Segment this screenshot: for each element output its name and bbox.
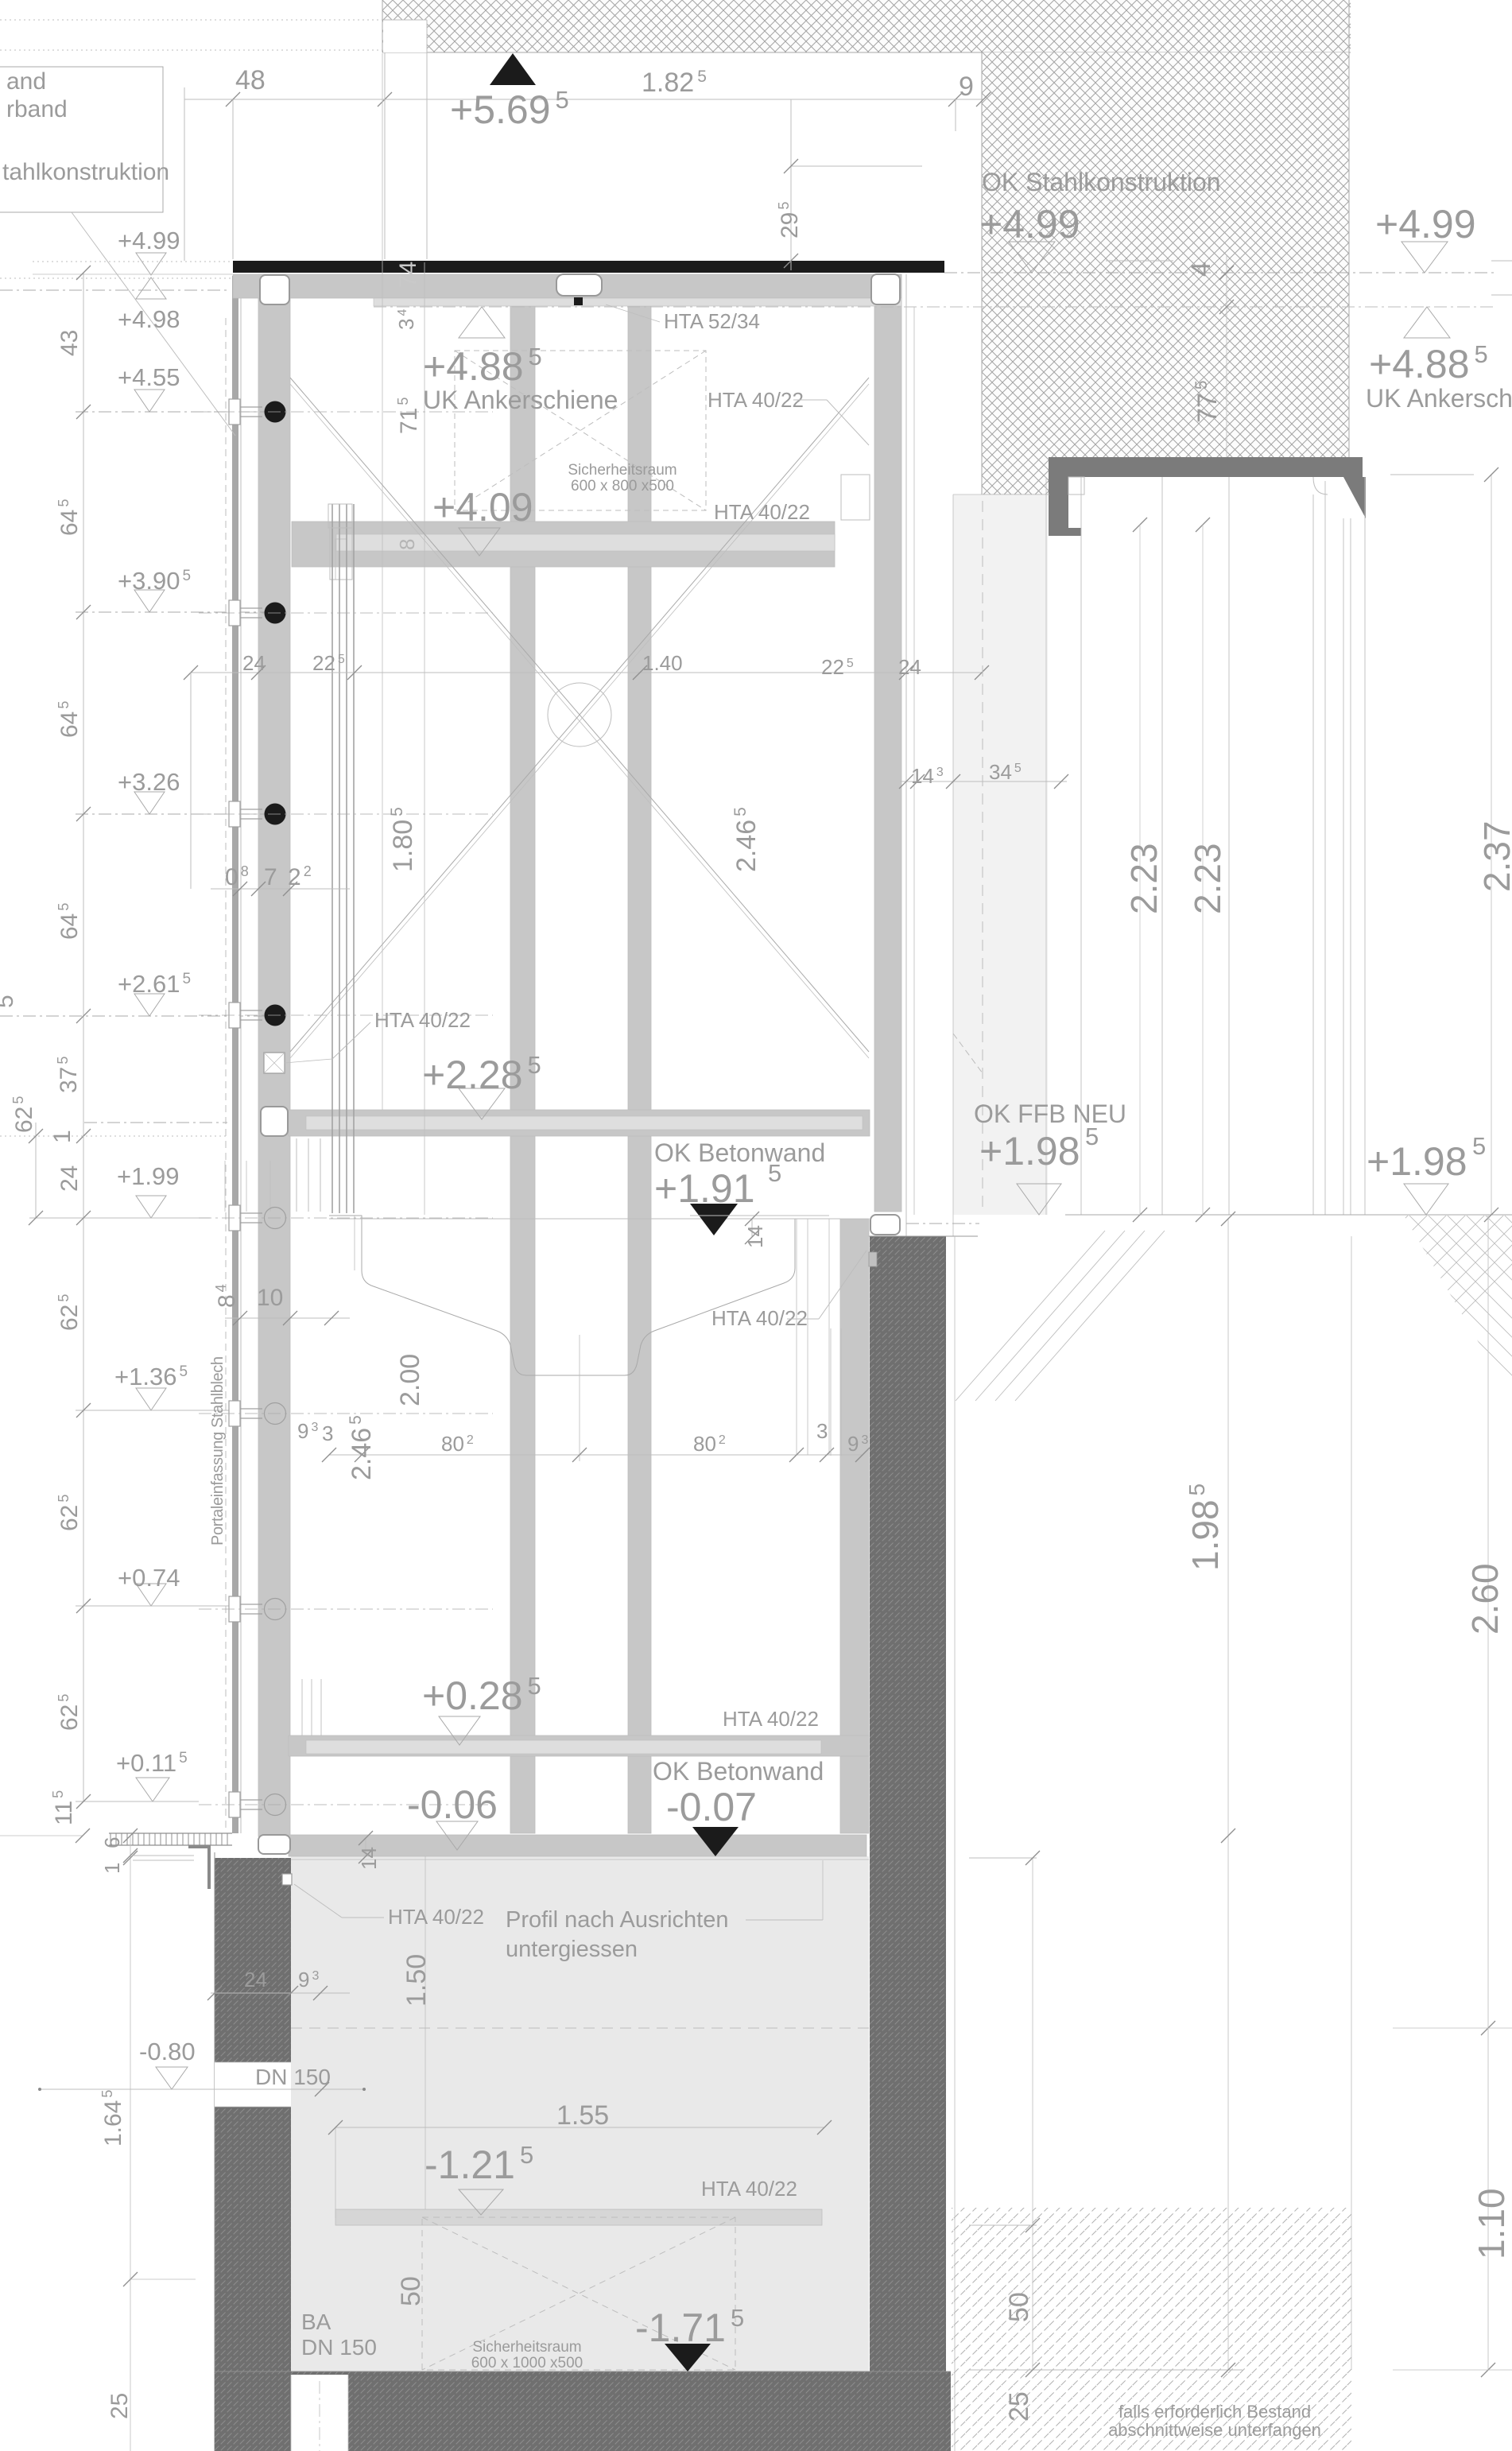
svg-text:24: 24 bbox=[244, 1968, 267, 1991]
svg-text:50: 50 bbox=[396, 2276, 426, 2306]
svg-text:+0.74: +0.74 bbox=[118, 1564, 180, 1592]
svg-text:OK Betonwand: OK Betonwand bbox=[654, 1138, 825, 1167]
svg-text:48: 48 bbox=[235, 65, 266, 95]
svg-text:HTA 40/22: HTA 40/22 bbox=[714, 500, 810, 524]
svg-text:and: and bbox=[6, 68, 46, 95]
svg-text:9: 9 bbox=[959, 72, 974, 102]
svg-text:600 x 800 x500: 600 x 800 x500 bbox=[571, 478, 674, 494]
svg-text:+4.98: +4.98 bbox=[118, 305, 180, 333]
svg-text:rband: rband bbox=[6, 96, 68, 122]
svg-text:falls erforderlich Bestand: falls erforderlich Bestand bbox=[1118, 2402, 1311, 2422]
svg-text:DN 150: DN 150 bbox=[301, 2335, 377, 2360]
svg-text:abschnittweise unterfangen: abschnittweise unterfangen bbox=[1108, 2420, 1321, 2440]
svg-text:4: 4 bbox=[1186, 262, 1216, 277]
svg-text:Portaleinfassung Stahlblech: Portaleinfassung Stahlblech bbox=[209, 1356, 227, 1545]
svg-text:+1.99: +1.99 bbox=[117, 1162, 179, 1190]
svg-text:UK Ankerschiene: UK Ankerschiene bbox=[423, 386, 618, 414]
svg-text:6: 6 bbox=[100, 1837, 124, 1848]
svg-text:HTA 40/22: HTA 40/22 bbox=[374, 1008, 471, 1032]
svg-text:BA: BA bbox=[301, 2309, 331, 2334]
svg-text:600 x 1000 x500: 600 x 1000 x500 bbox=[471, 2355, 583, 2371]
svg-text:+4.09: +4.09 bbox=[432, 485, 533, 529]
svg-text:-0.06: -0.06 bbox=[407, 1782, 498, 1827]
svg-text:2.23: 2.23 bbox=[1123, 843, 1165, 914]
svg-text:DN 150: DN 150 bbox=[255, 2065, 331, 2089]
svg-text:+1.91: +1.91 bbox=[654, 1166, 755, 1211]
svg-text:+3.26: +3.26 bbox=[118, 768, 180, 796]
svg-text:HTA 40/22: HTA 40/22 bbox=[711, 1306, 808, 1330]
svg-text:HTA 40/22: HTA 40/22 bbox=[708, 388, 804, 412]
svg-text:+4.99: +4.99 bbox=[979, 202, 1080, 246]
svg-text:OK Betonwand: OK Betonwand bbox=[653, 1757, 824, 1786]
svg-text:+4.99: +4.99 bbox=[1375, 202, 1476, 246]
svg-text:1.40: 1.40 bbox=[642, 651, 683, 675]
svg-text:74: 74 bbox=[395, 262, 421, 288]
svg-text:OK Stahlkonstruktion: OK Stahlkonstruktion bbox=[982, 168, 1221, 196]
svg-text:+1.98: +1.98 bbox=[1367, 1139, 1467, 1184]
svg-text:5: 5 bbox=[1472, 1132, 1486, 1160]
svg-text:OK FFB NEU: OK FFB NEU bbox=[974, 1099, 1126, 1128]
svg-text:25: 25 bbox=[107, 2393, 133, 2419]
svg-text:1.55: 1.55 bbox=[556, 2100, 609, 2131]
svg-text:24: 24 bbox=[898, 655, 921, 679]
svg-text:+4.55: +4.55 bbox=[118, 363, 180, 391]
svg-text:+2.615: +2.615 bbox=[118, 970, 191, 998]
svg-text:+1.98: +1.98 bbox=[979, 1129, 1080, 1173]
svg-text:5: 5 bbox=[768, 1159, 781, 1187]
svg-text:+4.99: +4.99 bbox=[118, 227, 180, 254]
svg-text:2.00: 2.00 bbox=[395, 1354, 425, 1406]
svg-text:+1.365: +1.365 bbox=[114, 1363, 188, 1390]
svg-text:1: 1 bbox=[49, 1130, 76, 1143]
svg-text:5: 5 bbox=[1085, 1123, 1099, 1150]
svg-text:2.23: 2.23 bbox=[1187, 843, 1228, 914]
svg-text:-0.80: -0.80 bbox=[139, 2038, 196, 2065]
svg-text:-0.07: -0.07 bbox=[666, 1785, 757, 1829]
svg-text:HTA 40/22: HTA 40/22 bbox=[701, 2177, 797, 2201]
svg-text:3: 3 bbox=[816, 1419, 828, 1443]
svg-text:1.10: 1.10 bbox=[1471, 2188, 1512, 2259]
svg-text:25: 25 bbox=[1004, 2391, 1034, 2422]
svg-text:43: 43 bbox=[56, 330, 83, 356]
svg-text:1: 1 bbox=[100, 1863, 124, 1874]
svg-text:8: 8 bbox=[395, 539, 419, 550]
svg-text:untergiessen: untergiessen bbox=[506, 1937, 638, 1962]
svg-text:2.37: 2.37 bbox=[1476, 820, 1512, 892]
svg-text:+3.905: +3.905 bbox=[118, 567, 191, 595]
svg-text:14: 14 bbox=[743, 1225, 767, 1248]
svg-text:50: 50 bbox=[1004, 2292, 1034, 2322]
svg-text:Sicherheitsraum: Sicherheitsraum bbox=[472, 2339, 581, 2356]
svg-text:1.50: 1.50 bbox=[401, 1954, 432, 2007]
svg-text:10: 10 bbox=[257, 1285, 283, 1311]
svg-text:HTA 40/22: HTA 40/22 bbox=[388, 1905, 484, 1929]
svg-text:UK Ankerschiene: UK Ankerschiene bbox=[1366, 384, 1512, 413]
svg-text:2.60: 2.60 bbox=[1464, 1563, 1506, 1635]
svg-text:7: 7 bbox=[264, 864, 277, 890]
svg-text:24: 24 bbox=[242, 651, 266, 675]
svg-text:3: 3 bbox=[322, 1421, 333, 1445]
svg-text:14: 14 bbox=[357, 1847, 381, 1870]
svg-text:Profil nach Ausrichten: Profil nach Ausrichten bbox=[506, 1907, 728, 1933]
svg-text:24: 24 bbox=[56, 1165, 83, 1192]
svg-text:5: 5 bbox=[0, 995, 18, 1008]
svg-text:HTA 52/34: HTA 52/34 bbox=[664, 309, 760, 333]
svg-text:Sicherheitsraum: Sicherheitsraum bbox=[568, 462, 677, 479]
svg-text:tahlkonstruktion: tahlkonstruktion bbox=[2, 159, 169, 185]
svg-text:HTA 40/22: HTA 40/22 bbox=[723, 1707, 819, 1731]
